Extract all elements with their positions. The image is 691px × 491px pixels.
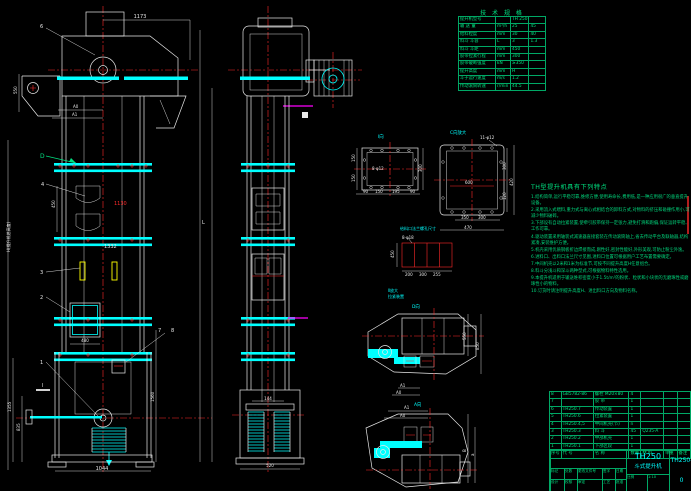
side-view: [228, 6, 362, 474]
spec-row: 提升高度mmH: [459, 68, 546, 75]
dim-f1-3: 90: [410, 189, 416, 194]
dim-d450: 450: [390, 250, 395, 258]
balloon-8: 8: [171, 328, 174, 334]
balloon-4: 4: [41, 182, 44, 188]
dim-dv-850: 850: [475, 342, 480, 350]
dim-door-480: 480: [81, 338, 89, 343]
section-marker-1: Ⅰ: [42, 383, 43, 389]
balloon-2: 2: [40, 295, 43, 301]
feature-item: 2.采用流入式喂料,重力式与离心式相结合的卸料方式,对物料的挤压和碰撞作用小,可…: [531, 208, 691, 220]
dim-520: 520: [266, 463, 274, 468]
tb-label: 校核: [564, 479, 577, 491]
spec-row: 给料粒度mm3040: [459, 31, 546, 38]
inlet-flange-caption: 给料口法兰螺孔尺寸: [400, 225, 436, 231]
detail-view-texts: Ⅰ向 C向放大 11-φ12 8-φ12 600 90 150 195 90 1…: [351, 129, 514, 456]
bom-row: 6TH250.7传动装置1: [550, 406, 691, 413]
spec-row: 斗子运行速度m/s1.2: [459, 76, 546, 83]
dim-dv-a1: A1: [400, 383, 406, 388]
tb-label: 设计: [550, 479, 564, 491]
balloon-3: 3: [40, 270, 43, 276]
flange-view-1: [354, 142, 426, 196]
dim-f2-470: 470: [464, 225, 472, 230]
dim-av-a: a: [470, 453, 475, 456]
label-a-view: A向: [414, 401, 421, 408]
title-block: 标记 处数 更改文件号 签字 日期 设计 校核 审定 工艺 批准 TH250 斗…: [549, 449, 691, 491]
label-L: L: [202, 220, 205, 226]
label-detail-2b: 拉紧装置: [388, 293, 404, 299]
tb-label: 签字: [602, 468, 615, 479]
dim-d3-2: 255: [433, 272, 441, 277]
spec-table: 提升机型号TH 250 输 送 量m³/h2545 给料粒度mm3040 料斗 …: [458, 16, 546, 91]
tb-scale-value: 1:10: [647, 474, 669, 491]
bom-row: 5TH250.6拉紧装置1: [550, 414, 691, 421]
takeup-spring: [92, 428, 126, 466]
feature-item: 9.本提升机适用于输送堆积密度小于1.5t/m³的粉状、粒状和小块状的无磨琢性或…: [531, 276, 691, 288]
feature-item: 8.料斗分浅斗和深斗两种型式,可根据物料特性选用。: [531, 269, 691, 275]
dim-1560: 1560: [150, 391, 155, 402]
spec-row: 料斗 斗距mm450: [459, 46, 546, 53]
dim-dv-550: 550: [462, 332, 467, 340]
dim-top-width: 1173: [134, 14, 147, 20]
dim-av-a0: A0: [400, 413, 406, 418]
bom-row: 7胶 带1: [550, 399, 691, 406]
spec-row: 输 送 量m³/h2545: [459, 24, 546, 31]
title-block-product: 斗式提升机: [626, 463, 669, 474]
dim-f1-1: 150: [375, 189, 383, 194]
feature-item: 5.机壳采用优质钢板折边焊接而成,刚性好,密封性能好,外形美观,可防止粉尘外逸。: [531, 248, 691, 254]
feature-notes: TH型提升机具有下列特点 1.结构简单,运行平稳可靠,维修方便,使用寿命长,费用…: [531, 182, 691, 296]
feature-item: 10.订货时请注明提升高度H、进出料口方向及物料名称。: [531, 289, 691, 295]
spec-row: 料斗 斗容L31.3: [459, 39, 546, 46]
dim-f2r-1: 120: [502, 192, 507, 200]
tb-label: 更改文件号: [577, 468, 602, 479]
bom-row: 3TH250.3料 斗45Q235-A: [550, 428, 691, 435]
tb-label: 审定: [577, 479, 602, 491]
dim-a0: A0: [73, 104, 79, 109]
label-d-view: D向: [412, 303, 420, 310]
feature-item: 4.驱动装置采用轴装式减速器直接套装在传动滚筒轴上,省去传动平台及联轴器,结构紧…: [531, 235, 691, 247]
dim-835: 835: [16, 423, 21, 431]
spec-row: 胶带破断强度kN≥350: [459, 61, 546, 68]
tb-scale-label: 比例: [626, 474, 647, 491]
feature-notes-title: TH型提升机具有下列特点: [531, 182, 691, 191]
bom-row: 4TH250.4,5中间机壳(节)n: [550, 421, 691, 428]
dim-dv-a0: A0: [396, 390, 402, 395]
balloon-6: 6: [40, 24, 43, 30]
dim-base-1044: 1044: [96, 466, 109, 472]
flange-view-c: [434, 139, 514, 230]
d-view: [362, 308, 484, 395]
dim-f2-420: 420: [509, 178, 514, 186]
tb-label: 工艺: [602, 479, 615, 491]
dim-f1s-1: 150: [351, 174, 356, 182]
dim-600: 600: [465, 180, 473, 185]
spec-row: 胶带拉紧行程mm300: [459, 53, 546, 60]
dim-f1-0: 90: [363, 189, 369, 194]
dim-f2-0: 350: [461, 215, 469, 220]
tb-label: 日期: [615, 468, 626, 479]
dim-f2-1: 300: [478, 215, 486, 220]
label-detail-2a: Ⅱ放大: [388, 287, 398, 293]
tb-label: 处数: [564, 468, 577, 479]
tb-label: 批准: [615, 479, 626, 491]
dim-f1s-0: 150: [351, 154, 356, 162]
label-holes-11: 11-φ12: [480, 135, 495, 140]
title-block-drawing-no: TH250-0: [669, 450, 691, 491]
dim-d3-0: 200: [405, 272, 413, 277]
dim-a1: A1: [72, 112, 78, 117]
dim-bucket-pitch: 450: [51, 200, 56, 208]
a-view: [366, 408, 478, 489]
dim-av-a1: A1: [404, 405, 410, 410]
front-view: [8, 6, 212, 474]
feature-item: 6.进料口、出料口法兰尺寸见图,进料口位置可根据用户工艺布置需要确定。: [531, 255, 691, 261]
balloon-7: 7: [158, 328, 161, 334]
label-holes-8: 8-φ12: [372, 166, 384, 171]
dim-f2r-0: 300: [502, 162, 507, 170]
spec-row: 传动滚筒转速r/min44.5: [459, 83, 546, 90]
tb-label: 标记: [550, 468, 564, 479]
label-holes-18: 8-φ18: [402, 235, 414, 240]
spec-row: 提升机型号TH 250: [459, 17, 546, 24]
dim-1355: 1355: [7, 401, 12, 412]
bom-row: 2TH250.2中部机壳1: [550, 436, 691, 443]
dim-f1-right: 300: [418, 164, 423, 172]
balloon-1: 1: [40, 360, 43, 366]
dim-144: 144: [264, 396, 272, 401]
cad-drawing-screen: 1173 550 A0 A1 450 1130 1332 480 1355 83…: [0, 0, 691, 491]
inlet-flange-detail: [397, 238, 452, 271]
dim-f1-2: 195: [392, 189, 400, 194]
dim-av-b: B: [462, 449, 467, 452]
bom-row: 8GB5782-86螺栓 M20×804: [550, 392, 691, 399]
dim-1130: 1130: [114, 201, 127, 207]
side-springs: [248, 412, 290, 452]
dim-head-550: 550: [13, 86, 18, 94]
label-view-c: C向放大: [450, 129, 467, 136]
dim-d3-1: 300: [419, 272, 427, 277]
label-total-height: H(提升机总高度): [5, 221, 11, 252]
dimension-texts: 1173 550 A0 A1 450 1130 1332 480 1355 83…: [5, 14, 274, 472]
feature-item: 3.下部设有自动拉紧装置,使牵引胶带保持一定张力,避免打滑和跑偏,保证运转平稳、…: [531, 221, 691, 233]
label-view-1: Ⅰ向: [378, 133, 384, 140]
feature-item: 7.中间机壳以2米和1米为标准节,可按不同提升高度H任意组合。: [531, 262, 691, 268]
view-arrow-D: D: [40, 153, 45, 160]
dim-1332: 1332: [104, 244, 117, 250]
feature-item: 1.结构简单,运行平稳可靠,维修方便,使用寿命长,费用低,是一种应用很广的垂直提…: [531, 195, 691, 207]
